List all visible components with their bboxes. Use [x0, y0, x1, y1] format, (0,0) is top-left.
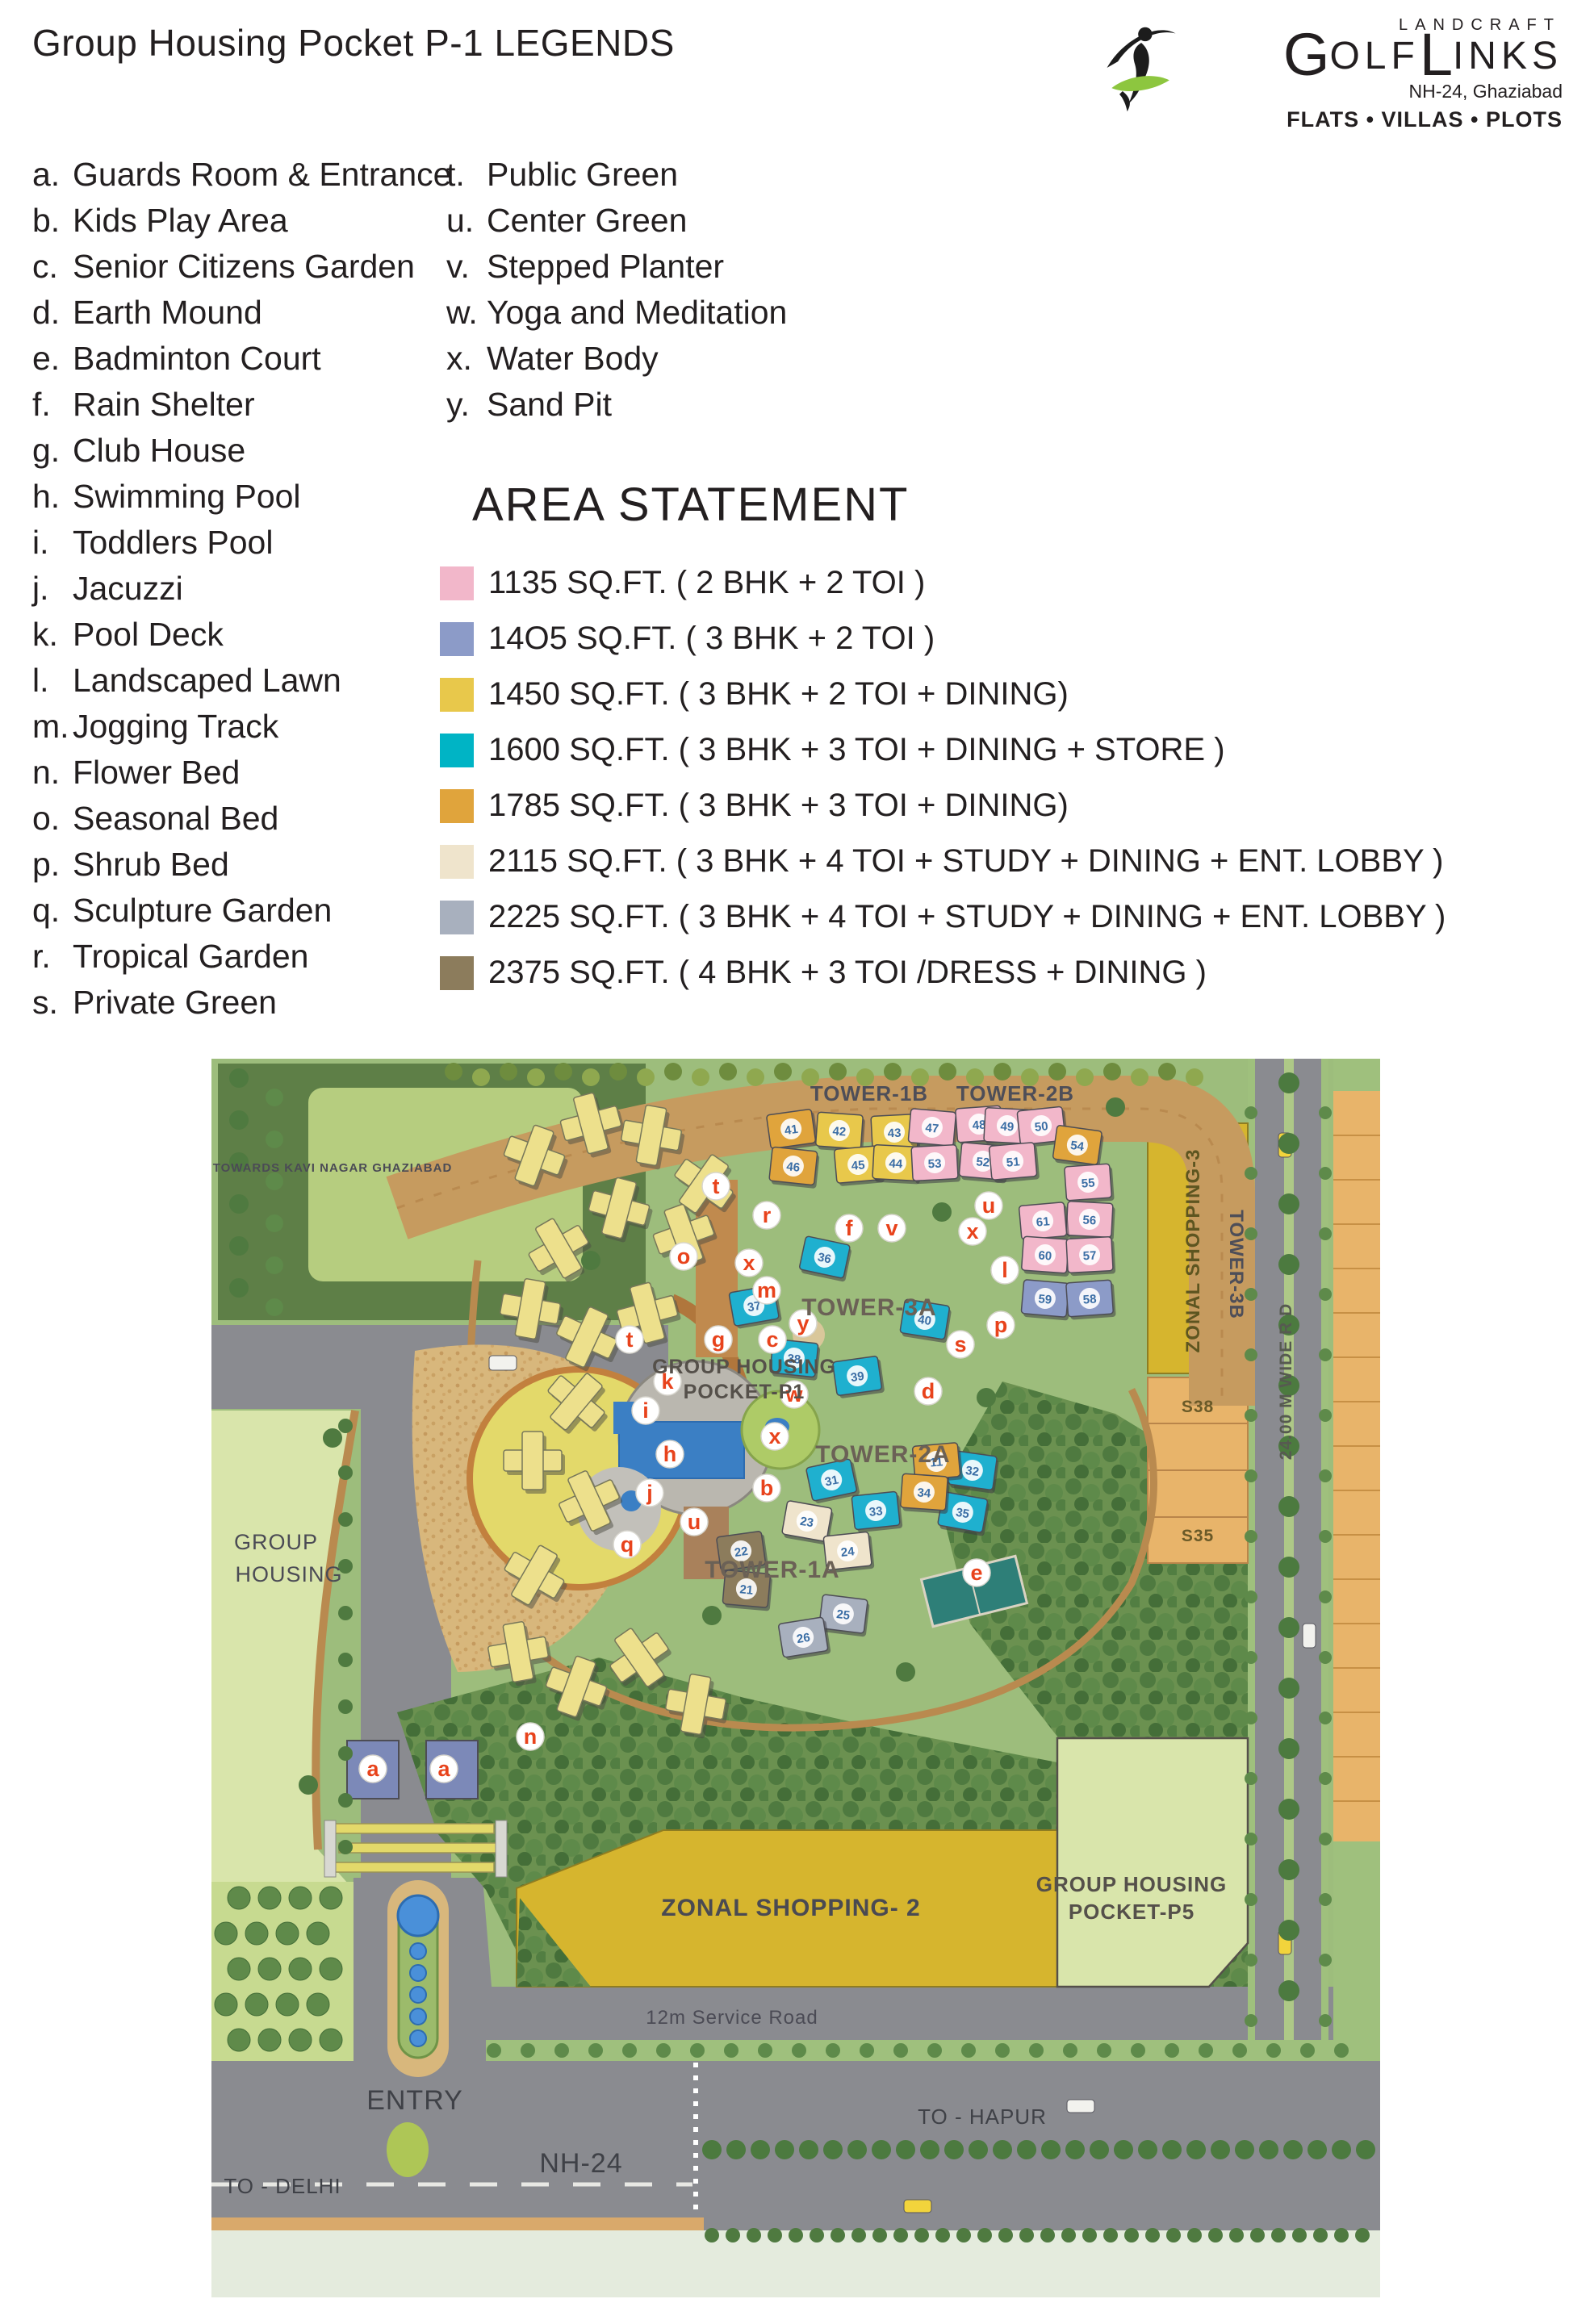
tree	[1138, 2140, 1157, 2159]
map-marker-t: t	[616, 1326, 643, 1353]
tower-unit-number: 32	[964, 1464, 980, 1479]
map-label: S35	[1182, 1527, 1214, 1545]
tower-unit: 26	[778, 1616, 831, 1661]
site-plan-map: 4142434645444748495053525154555661605759…	[211, 1059, 1380, 2297]
logo-landcraft: LANDCRAFT	[1399, 16, 1561, 35]
tree	[944, 2140, 964, 2159]
map-marker-letter: q	[621, 1532, 634, 1557]
legend-key: y.	[446, 382, 487, 428]
tree	[1278, 1072, 1299, 1093]
tree	[927, 2043, 942, 2058]
legend-column-2: t.Public Greenu.Center Greenv.Stepped Pl…	[446, 152, 787, 428]
tree	[914, 2228, 929, 2242]
tree	[1131, 1068, 1149, 1086]
legend-item: v.Stepped Planter	[446, 244, 787, 290]
tree	[993, 2140, 1012, 2159]
legend-key: p.	[32, 842, 73, 888]
legend-item: a.Guards Room & Entrance	[32, 152, 451, 198]
area-statement-row: 2115 SQ.FT. ( 3 BHK + 4 TOI + STUDY + DI…	[440, 834, 1446, 889]
legend-key: r.	[32, 934, 73, 980]
map-label: 12m Service Road	[646, 2007, 818, 2029]
tree	[1278, 1678, 1299, 1699]
legend-item: y.Sand Pit	[446, 382, 787, 428]
tree	[1158, 1063, 1176, 1080]
tower-unit-number: 39	[850, 1369, 865, 1385]
tree	[323, 1428, 342, 1448]
legend-item: n.Flower Bed	[32, 750, 451, 796]
tree	[1355, 2228, 1370, 2242]
tree	[872, 2140, 891, 2159]
area-statement-title: AREA STATEMENT	[472, 478, 909, 532]
tree	[1278, 1133, 1299, 1154]
tree	[969, 2140, 988, 2159]
legend-key: i.	[32, 520, 73, 566]
legend-key: o.	[32, 796, 73, 842]
legend-key: w.	[446, 290, 487, 336]
tree	[622, 2043, 637, 2058]
tree	[1029, 2043, 1044, 2058]
map-marker-letter: d	[922, 1379, 935, 1403]
map-marker-x: x	[735, 1249, 763, 1277]
tower-unit-number: 41	[784, 1122, 799, 1138]
legend-item: t.Public Green	[446, 152, 787, 198]
tree	[977, 2228, 992, 2242]
legend-label: Public Green	[487, 152, 678, 198]
map-label: POCKET-P5	[1069, 1900, 1195, 1924]
tree	[1292, 2228, 1307, 2242]
tree	[774, 1063, 792, 1080]
tower-unit-number: 49	[1000, 1120, 1015, 1135]
legend-label: Yoga and Meditation	[487, 290, 787, 336]
orchard-tree	[258, 1958, 281, 1980]
orchard-tree	[245, 1922, 268, 1945]
tree	[1040, 2228, 1055, 2242]
tower-unit: 60	[1021, 1236, 1071, 1277]
tower-unit-number: 33	[868, 1504, 883, 1519]
map-label: TOWER-2A	[815, 1441, 950, 1468]
tree	[1208, 2228, 1223, 2242]
orchard-tree	[320, 2029, 342, 2051]
tree	[1278, 1617, 1299, 1638]
tree	[884, 1063, 902, 1080]
area-label: 1450 SQ.FT. ( 3 BHK + 2 TOI + DINING)	[488, 676, 1069, 713]
tower-unit-number: 53	[927, 1157, 942, 1172]
orchard-tree	[276, 1922, 299, 1945]
tree	[893, 2043, 908, 2058]
orchard-tree	[307, 1993, 329, 2016]
map-marker-c: c	[759, 1326, 786, 1353]
map-marker-letter: r	[763, 1203, 772, 1227]
tower-unit-number: 50	[1034, 1119, 1048, 1135]
tree	[1278, 1738, 1299, 1759]
tower-unit-number: 43	[887, 1126, 902, 1141]
map-marker-u: u	[975, 1192, 1002, 1219]
tower-unit-number: 57	[1082, 1249, 1097, 1264]
area-color-swatch	[440, 845, 474, 879]
tree	[1106, 1097, 1125, 1117]
map-marker-x: x	[761, 1423, 789, 1450]
map-label: GROUP	[234, 1530, 318, 1554]
legend-label: Swimming Pool	[73, 474, 301, 520]
tree	[299, 1775, 318, 1795]
legend-key: m.	[32, 704, 73, 750]
tree	[719, 1063, 737, 1080]
map-label: 24.00 M WIDE R D	[1277, 1303, 1295, 1461]
map-marker-a: a	[359, 1755, 387, 1783]
map-label: TO - HAPUR	[918, 2105, 1047, 2129]
area-color-swatch	[440, 566, 474, 600]
map-marker-letter: l	[1002, 1258, 1008, 1282]
tree	[1103, 2228, 1118, 2242]
tree	[961, 2043, 976, 2058]
legend-label: Rain Shelter	[73, 382, 255, 428]
tree	[872, 2228, 887, 2242]
legend-item: g.Club House	[32, 428, 451, 474]
page: { "page": { "title": "Group Housing Pock…	[0, 0, 1569, 2324]
area-color-swatch	[440, 734, 474, 767]
tree	[810, 2228, 824, 2242]
tree	[939, 1063, 956, 1080]
tree	[1187, 2228, 1202, 2242]
map-marker-letter: e	[970, 1561, 982, 1585]
orchard-tree	[289, 2029, 312, 2051]
area-statement-row: 1135 SQ.FT. ( 2 BHK + 2 TOI )	[440, 555, 1446, 611]
legend-item: x.Water Body	[446, 336, 787, 382]
legend-key: c.	[32, 244, 73, 290]
tree	[823, 2140, 843, 2159]
tree	[1259, 2140, 1278, 2159]
tower-unit-number: 31	[824, 1473, 840, 1489]
legend-key: n.	[32, 750, 73, 796]
area-label: 2225 SQ.FT. ( 3 BHK + 4 TOI + STUDY + DI…	[488, 899, 1446, 935]
fountain-head	[398, 1896, 438, 1936]
tree	[1278, 1859, 1299, 1880]
area-color-swatch	[440, 678, 474, 712]
legend-item: s.Private Green	[32, 980, 451, 1026]
legend-label: Sculpture Garden	[73, 888, 332, 934]
tower-unit-number: 44	[889, 1157, 903, 1172]
legend-label: Jacuzzi	[73, 566, 183, 612]
legend-key: b.	[32, 198, 73, 244]
tree	[799, 2140, 818, 2159]
tower-unit-number: 23	[799, 1515, 814, 1531]
tree	[588, 2043, 603, 2058]
legend-item: d.Earth Mound	[32, 290, 451, 336]
tree	[1097, 2043, 1111, 2058]
area-color-swatch	[440, 901, 474, 934]
map-marker-letter: t	[713, 1174, 720, 1198]
area-statement-row: 2225 SQ.FT. ( 3 BHK + 4 TOI + STUDY + DI…	[440, 889, 1446, 945]
tree	[1017, 2140, 1036, 2159]
map-marker-g: g	[705, 1326, 732, 1353]
tree	[637, 1068, 655, 1086]
map-marker-letter: c	[766, 1327, 778, 1352]
legend-key: q.	[32, 888, 73, 934]
tree	[656, 2043, 671, 2058]
legend-label: Stepped Planter	[487, 244, 724, 290]
tower-unit-number: 54	[1069, 1139, 1086, 1154]
area-label: 1135 SQ.FT. ( 2 BHK + 2 TOI )	[488, 565, 925, 601]
tree	[977, 1388, 996, 1407]
legend-key: u.	[446, 198, 487, 244]
legend-item: q.Sculpture Garden	[32, 888, 451, 934]
map-marker-letter: f	[846, 1216, 854, 1240]
tree	[995, 2043, 1010, 2058]
area-statement-list: 1135 SQ.FT. ( 2 BHK + 2 TOI )14O5 SQ.FT.…	[440, 555, 1446, 1001]
map-marker-letter: p	[994, 1313, 1008, 1337]
map-marker-r: r	[753, 1202, 780, 1229]
logo-location: NH-24, Ghaziabad	[1188, 81, 1563, 102]
tower-unit-number: 42	[832, 1124, 847, 1139]
tree	[826, 2043, 840, 2058]
map-marker-x: x	[959, 1218, 986, 1245]
legend-label: Sand Pit	[487, 382, 612, 428]
tree	[705, 2228, 719, 2242]
orchard-tree	[307, 1922, 329, 1945]
tree	[487, 2043, 501, 2058]
map-marker-letter: o	[677, 1244, 691, 1269]
legend-item: u.Center Green	[446, 198, 787, 244]
tower-unit-number: 36	[817, 1250, 833, 1266]
map-label: GROUP HOUSING	[652, 1356, 836, 1378]
map-marker-letter: u	[688, 1510, 701, 1534]
tower-unit-number: 24	[840, 1544, 856, 1560]
tower-unit-number: 34	[917, 1486, 931, 1500]
legend-key: g.	[32, 428, 73, 474]
legend-item: k.Pool Deck	[32, 612, 451, 658]
tree	[860, 2043, 874, 2058]
tree	[692, 1068, 709, 1086]
map-label: TOWER-2B	[956, 1081, 1074, 1106]
tree	[847, 2140, 867, 2159]
tree	[1250, 2228, 1265, 2242]
orchard-tree	[215, 1922, 237, 1945]
tree	[1082, 2228, 1097, 2242]
tower-unit: 56	[1066, 1202, 1115, 1241]
legend-label: Club House	[73, 428, 245, 474]
tree	[581, 1251, 600, 1270]
legend-item: b.Kids Play Area	[32, 198, 451, 244]
tree	[775, 2140, 794, 2159]
tree	[1278, 1799, 1299, 1820]
tree	[893, 2228, 908, 2242]
tree	[702, 1606, 722, 1625]
tower-unit: 51	[989, 1142, 1040, 1183]
logo-wordmark: GOLFLINKS	[1188, 31, 1563, 79]
tower-unit-number: 35	[955, 1506, 970, 1522]
tree	[1278, 1980, 1299, 2001]
tower-unit: 34	[900, 1473, 950, 1514]
tree	[1232, 2043, 1247, 2058]
tower-unit-number: 51	[1006, 1155, 1020, 1169]
legend-label: Private Green	[73, 980, 277, 1026]
tree	[726, 2140, 746, 2159]
tower-unit-number: 55	[1081, 1176, 1095, 1190]
tree	[445, 1063, 462, 1080]
tower-unit: 53	[911, 1144, 960, 1184]
legend-label: Shrub Bed	[73, 842, 229, 888]
legend-key: s.	[32, 980, 73, 1026]
area-label: 1785 SQ.FT. ( 3 BHK + 3 TOI + DINING)	[488, 788, 1069, 824]
map-marker-h: h	[656, 1440, 684, 1468]
tower-unit: 54	[1052, 1125, 1105, 1168]
tower-unit: 46	[768, 1147, 819, 1189]
area-label: 2115 SQ.FT. ( 3 BHK + 4 TOI + STUDY + DI…	[488, 843, 1443, 880]
legend-item: m.Jogging Track	[32, 704, 451, 750]
map-marker-m: m	[753, 1277, 780, 1304]
map-label: S38	[1182, 1398, 1214, 1416]
map-marker-letter: u	[982, 1193, 996, 1218]
tree	[724, 2043, 738, 2058]
tree	[1278, 1496, 1299, 1517]
orchard-tree	[228, 1887, 250, 1909]
area-statement-row: 1450 SQ.FT. ( 3 BHK + 2 TOI + DINING)	[440, 667, 1446, 722]
tower-unit: 42	[815, 1112, 865, 1152]
plot-strip-east	[1333, 1091, 1380, 1841]
tree	[1186, 1068, 1203, 1086]
tree	[1199, 2043, 1213, 2058]
tower-unit: 47	[908, 1109, 959, 1150]
area-statement-row: 14O5 SQ.FT. ( 3 BHK + 2 TOI )	[440, 611, 1446, 667]
tree	[998, 2228, 1013, 2242]
legend-item: w.Yoga and Meditation	[446, 290, 787, 336]
legend-label: Seasonal Bed	[73, 796, 278, 842]
legend-item: j.Jacuzzi	[32, 566, 451, 612]
tree	[896, 2140, 915, 2159]
tree	[831, 2228, 845, 2242]
tree	[747, 1068, 764, 1086]
area-label: 14O5 SQ.FT. ( 3 BHK + 2 TOI )	[488, 621, 935, 657]
orchard-tree	[258, 2029, 281, 2051]
tower-unit-number: 56	[1082, 1214, 1097, 1228]
orchard-tree	[228, 1958, 250, 1980]
legend-key: v.	[446, 244, 487, 290]
tree	[690, 2043, 705, 2058]
orchard-tree	[289, 1958, 312, 1980]
tree	[751, 2140, 770, 2159]
legend-item: p.Shrub Bed	[32, 842, 451, 888]
tree	[554, 2043, 569, 2058]
site-plan-svg: 4142434645444748495053525154555661605759…	[211, 1059, 1380, 2297]
legend-column-1: a.Guards Room & Entranceb.Kids Play Area…	[32, 152, 451, 1026]
legend-item: r.Tropical Garden	[32, 934, 451, 980]
map-marker-b: b	[753, 1474, 780, 1502]
map-marker-letter: h	[663, 1442, 677, 1466]
map-marker-e: e	[963, 1559, 990, 1586]
map-marker-o: o	[670, 1243, 697, 1270]
orchard-tree	[245, 1993, 268, 2016]
tree	[1019, 2228, 1034, 2242]
tower-unit: 58	[1066, 1280, 1116, 1320]
legend-key: t.	[446, 152, 487, 198]
tower-unit-number: 60	[1038, 1248, 1052, 1263]
tree	[1332, 2140, 1351, 2159]
entry-island	[387, 2122, 429, 2177]
tree	[472, 1068, 490, 1086]
map-label: HOUSING	[235, 1562, 342, 1586]
map-label: ENTRY	[366, 2085, 463, 2116]
map-label: GROUP HOUSING	[1036, 1872, 1227, 1896]
tower-unit-number: 47	[925, 1121, 939, 1135]
map-label: ZONAL SHOPPING-3	[1182, 1149, 1204, 1353]
legend-key: h.	[32, 474, 73, 520]
legend-key: f.	[32, 382, 73, 428]
tree	[768, 2228, 782, 2242]
tree	[789, 2228, 803, 2242]
tower-unit: 33	[851, 1491, 902, 1533]
tree	[1041, 2140, 1061, 2159]
map-marker-letter: a	[366, 1757, 379, 1781]
map-marker-v: v	[878, 1214, 906, 1242]
map-marker-p: p	[987, 1311, 1015, 1339]
map-label: TOWER-3A	[801, 1294, 936, 1321]
area-color-swatch	[440, 789, 474, 823]
tree	[1278, 1920, 1299, 1941]
map-marker-a: a	[430, 1755, 458, 1783]
map-marker-letter: b	[760, 1476, 774, 1500]
tree	[1307, 2140, 1327, 2159]
map-marker-n: n	[517, 1723, 544, 1750]
map-marker-letter: i	[642, 1398, 649, 1423]
tree	[792, 2043, 806, 2058]
map-label: TO - DELHI	[224, 2174, 341, 2198]
tree	[932, 1202, 952, 1222]
pocket-p5-area	[1057, 1738, 1248, 1987]
map-marker-u: u	[680, 1508, 708, 1536]
tree	[956, 2228, 971, 2242]
tree	[758, 2043, 772, 2058]
tower-unit-number: 45	[851, 1158, 865, 1172]
map-label: ZONAL SHOPPING- 2	[661, 1895, 920, 1921]
area-statement-row: 1600 SQ.FT. ( 3 BHK + 3 TOI + DINING + S…	[440, 722, 1446, 778]
area-color-swatch	[440, 622, 474, 656]
legend-item: o.Seasonal Bed	[32, 796, 451, 842]
tree	[664, 1063, 682, 1080]
tower-unit-number: 21	[739, 1582, 754, 1597]
tower-unit-number: 25	[835, 1607, 851, 1623]
tree	[1334, 2228, 1349, 2242]
tree	[500, 1063, 517, 1080]
tower-unit: 39	[832, 1356, 885, 1399]
tree	[1124, 2228, 1139, 2242]
tree	[1313, 2228, 1328, 2242]
tower-unit-number: 52	[976, 1155, 990, 1169]
brand-logo: LANDCRAFT GOLFLINKS NH-24, Ghaziabad FLA…	[1096, 15, 1563, 136]
area-color-swatch	[440, 956, 474, 990]
tree	[1266, 2043, 1281, 2058]
legend-label: Badminton Court	[73, 336, 321, 382]
legend-label: Landscaped Lawn	[73, 658, 341, 704]
orchard-tree	[276, 1993, 299, 2016]
tree	[1211, 2140, 1230, 2159]
tree	[1063, 2043, 1077, 2058]
tree	[554, 1063, 572, 1080]
nh24-south-kerb	[211, 2217, 704, 2230]
map-marker-t: t	[702, 1172, 730, 1200]
tree	[1166, 2228, 1181, 2242]
tree	[1061, 2228, 1076, 2242]
tree	[1162, 2140, 1182, 2159]
tree	[829, 1063, 847, 1080]
legend-label: Guards Room & Entrance	[73, 152, 451, 198]
map-marker-letter: a	[437, 1757, 450, 1781]
tree	[609, 1063, 627, 1080]
orchard-tree	[320, 1887, 342, 1909]
map-marker-d: d	[914, 1377, 942, 1405]
map-marker-j: j	[636, 1479, 663, 1507]
map-marker-letter: g	[712, 1327, 726, 1352]
tower-unit: 59	[1021, 1280, 1072, 1321]
